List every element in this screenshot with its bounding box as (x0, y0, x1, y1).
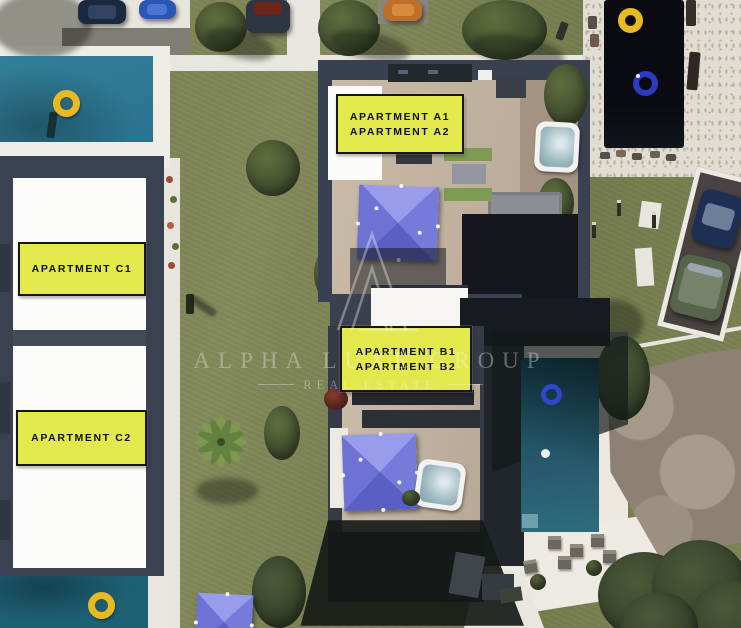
palm-tree (188, 394, 254, 494)
pool-step (522, 514, 538, 528)
apartment-b1-text: APARTMENT B1 (356, 346, 457, 358)
car-roof (88, 5, 116, 19)
watermark-dash-left (258, 384, 294, 385)
sunbather (616, 150, 626, 157)
lamp-post (652, 212, 656, 228)
apartment-a1-text: APARTMENT A1 (350, 111, 450, 123)
kitchen-counter (362, 410, 480, 428)
pool-ball (541, 449, 550, 458)
flower (172, 243, 179, 250)
car-navy (689, 187, 741, 251)
hot-tub-a (534, 121, 581, 173)
sunbather (632, 153, 642, 160)
pool-right (521, 358, 599, 532)
blue-canopy-bottom (195, 593, 254, 628)
kitchen-vent (428, 70, 438, 74)
terrace-plant (544, 64, 588, 126)
flower (170, 196, 177, 203)
apartment-b-label: APARTMENT B1 APARTMENT B2 (340, 326, 472, 392)
apartment-c1-text: APARTMENT C1 (32, 263, 133, 275)
car-orange-top (384, 0, 422, 21)
building-c-divider (13, 330, 146, 346)
apartment-c2-text: APARTMENT C2 (31, 432, 132, 444)
flower (168, 262, 175, 269)
cube-stool (570, 544, 583, 557)
tree (246, 140, 300, 196)
scene: APARTMENT C1 APARTMENT C2 APARTMENT A1 A… (0, 0, 741, 628)
flower (166, 176, 173, 183)
cube-stool (558, 556, 571, 569)
sunbather (588, 16, 597, 29)
sunbather (590, 34, 599, 47)
bush (264, 406, 300, 460)
car-blue-top (139, 0, 176, 19)
lamp-post (592, 222, 596, 238)
car-maroon-top (246, 0, 290, 33)
apartment-c1-label: APARTMENT C1 (18, 242, 146, 296)
cube-stool (548, 536, 561, 549)
lamp-post (617, 200, 621, 216)
building-c-roof (13, 178, 146, 568)
kitchen-counter (352, 390, 474, 405)
tree (252, 556, 306, 628)
person-figure (555, 21, 569, 41)
terrace-plant (402, 490, 420, 506)
car-green (668, 252, 733, 323)
apartment-a-label: APARTMENT A1 APARTMENT A2 (336, 94, 464, 154)
path-vertical-entry (287, 0, 320, 70)
yellow-ring-float (88, 592, 115, 619)
garden-wall (635, 247, 655, 286)
blue-ring-float (541, 384, 562, 405)
garden-wall (638, 201, 661, 230)
hot-tub-water (539, 126, 575, 168)
car-roof (147, 4, 167, 15)
apartment-a2-text: APARTMENT A2 (350, 126, 450, 138)
car-roof (254, 2, 282, 15)
sunbather (600, 152, 610, 159)
yellow-ring-float (53, 90, 80, 117)
yellow-ring-float (618, 8, 643, 33)
shaded-pool-a (462, 214, 578, 302)
sunbather (666, 154, 676, 161)
white-table (478, 70, 492, 80)
cube-stool (523, 559, 538, 574)
car-windshield (701, 202, 736, 231)
sunbather (686, 0, 696, 26)
dark-chair (496, 78, 526, 98)
parking-lot (657, 166, 741, 342)
hot-tub-b (413, 458, 467, 512)
green-bench (444, 188, 492, 201)
hot-tub-water (419, 464, 462, 507)
car-roof (392, 4, 414, 16)
dining-table (452, 164, 486, 184)
building-c-balcony (0, 382, 10, 434)
building-c-balcony (0, 244, 10, 292)
terrace-plant (586, 560, 602, 576)
building-c-balcony (0, 500, 10, 540)
car-navy-top (78, 0, 126, 24)
apartment-c2-label: APARTMENT C2 (16, 410, 147, 466)
terrace-plant (530, 574, 546, 590)
flower (167, 222, 174, 229)
cube-stool (591, 534, 604, 547)
connector-white-roof (371, 285, 468, 327)
pool-bottom-left (0, 570, 148, 628)
float-highlight (636, 74, 640, 78)
kitchen-vent (398, 70, 408, 74)
apartment-b2-text: APARTMENT B2 (356, 361, 457, 373)
sunbather (650, 151, 660, 158)
